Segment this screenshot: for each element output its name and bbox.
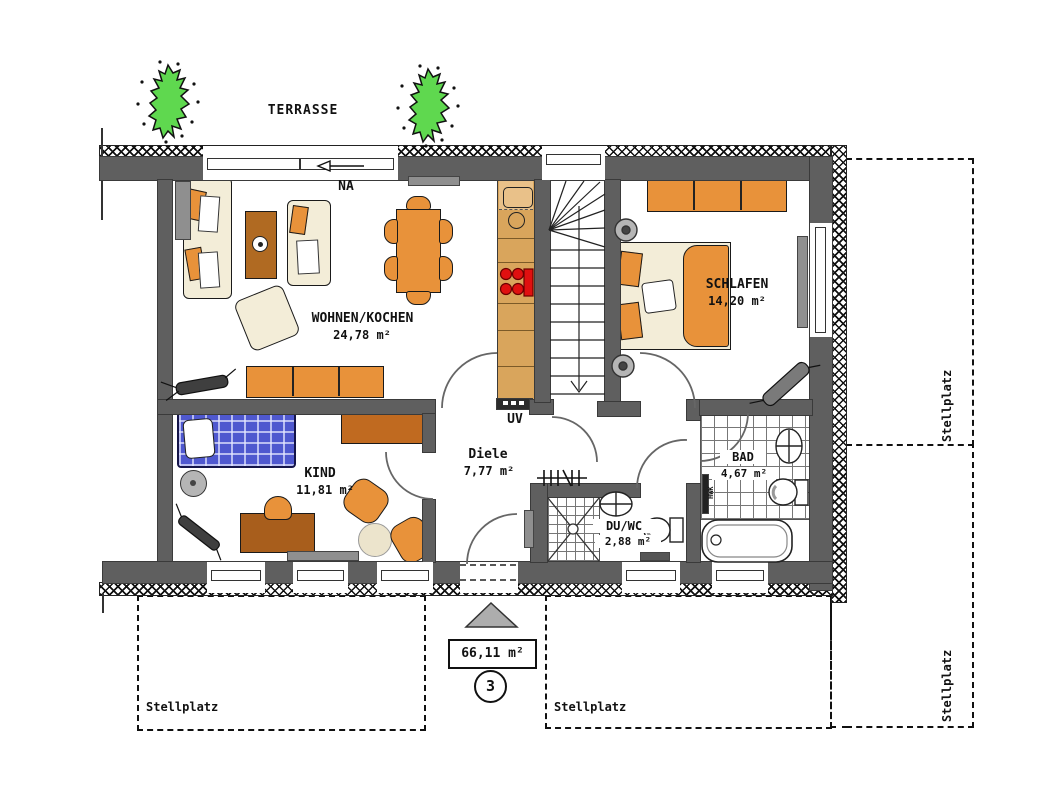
bush-right-icon bbox=[396, 64, 459, 147]
total-area-value: 66,11 m² bbox=[450, 646, 535, 661]
unit-number-value: 3 bbox=[476, 677, 505, 695]
terrace-door-arrow-icon bbox=[318, 161, 364, 171]
unit-number-badge: 3 bbox=[474, 670, 507, 703]
uv-label: UV bbox=[500, 412, 530, 427]
bathtub-icon bbox=[702, 520, 792, 562]
na-label: NA bbox=[332, 179, 360, 194]
room-area-kid: 11,81 m² bbox=[282, 483, 368, 497]
plant-bedroom-icon bbox=[750, 351, 821, 417]
door-arc-duwc bbox=[637, 440, 687, 488]
hwk-label: HWK bbox=[707, 476, 715, 510]
room-area-duwc: 2,88 m² bbox=[595, 535, 661, 548]
room-area-bedroom: 14,20 m² bbox=[697, 294, 777, 308]
bush-left-icon bbox=[136, 60, 199, 143]
bath-sink-icon bbox=[776, 429, 802, 463]
coat-rack-icon bbox=[537, 470, 587, 486]
shower-icon bbox=[548, 498, 599, 561]
room-name-hall: Diele bbox=[458, 447, 518, 462]
staircase bbox=[549, 181, 605, 394]
door-arc-bedroom bbox=[640, 353, 695, 408]
floor-plan: TERRASSE NA WOHNEN/KOCHEN 24,78 m² KIND … bbox=[0, 0, 1048, 786]
room-name-living: WOHNEN/KOCHEN bbox=[285, 311, 440, 326]
room-name-bedroom: SCHLAFEN bbox=[692, 277, 782, 292]
entrance-threshold bbox=[460, 565, 518, 580]
door-arc-stairs bbox=[552, 417, 597, 462]
entrance-marker-triangle bbox=[466, 603, 517, 627]
room-name-kid: KIND bbox=[290, 466, 350, 481]
duwc-sink-icon bbox=[600, 492, 632, 516]
stove-burners-icon bbox=[501, 269, 534, 297]
plant-living-icon bbox=[161, 369, 239, 401]
parking-label-bottom-left: Stellplatz bbox=[146, 700, 226, 714]
room-name-duwc: DU/WC bbox=[593, 519, 655, 533]
parking-label-bottom-center: Stellplatz bbox=[554, 700, 634, 714]
parking-label-right-upper: Stellplatz bbox=[940, 372, 954, 442]
door-arc-kid bbox=[386, 452, 433, 499]
plant-kid-icon bbox=[166, 504, 232, 560]
uv-board-ticks bbox=[503, 401, 524, 405]
parking-label-right-lower: Stellplatz bbox=[940, 652, 954, 722]
bath-toilet-icon bbox=[769, 479, 808, 505]
door-arc-entrance bbox=[467, 514, 517, 564]
room-area-bath: 4,67 m² bbox=[712, 467, 776, 480]
total-area-box: 66,11 m² bbox=[448, 639, 537, 669]
room-name-bath: BAD bbox=[720, 450, 766, 464]
nightstand-icons bbox=[612, 219, 637, 377]
room-area-hall: 7,77 m² bbox=[452, 464, 526, 478]
terrace-label: TERRASSE bbox=[255, 103, 351, 118]
room-area-living: 24,78 m² bbox=[302, 328, 422, 342]
door-arc-living bbox=[442, 353, 497, 408]
